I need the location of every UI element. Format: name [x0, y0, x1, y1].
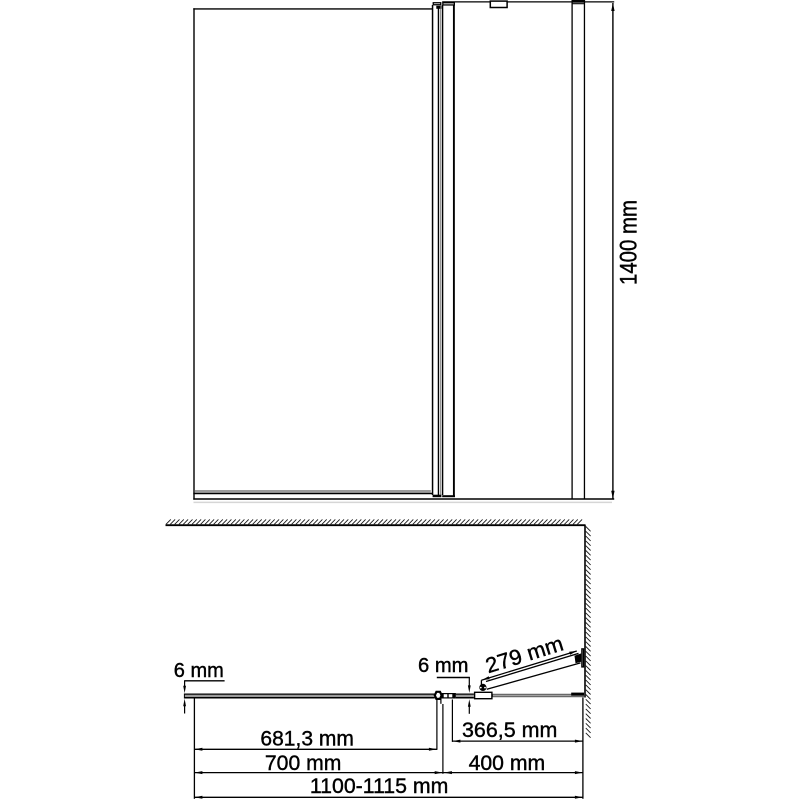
svg-text:1400 mm: 1400 mm [615, 200, 642, 285]
svg-text:6 mm: 6 mm [418, 655, 469, 677]
svg-text:366,5 mm: 366,5 mm [462, 718, 557, 742]
svg-text:1100-1115 mm: 1100-1115 mm [310, 774, 449, 798]
svg-text:681,3 mm: 681,3 mm [260, 727, 354, 751]
svg-text:6 mm: 6 mm [174, 660, 224, 682]
svg-text:279 mm: 279 mm [483, 631, 567, 678]
svg-text:400 mm: 400 mm [469, 751, 546, 775]
svg-text:700 mm: 700 mm [265, 751, 342, 775]
